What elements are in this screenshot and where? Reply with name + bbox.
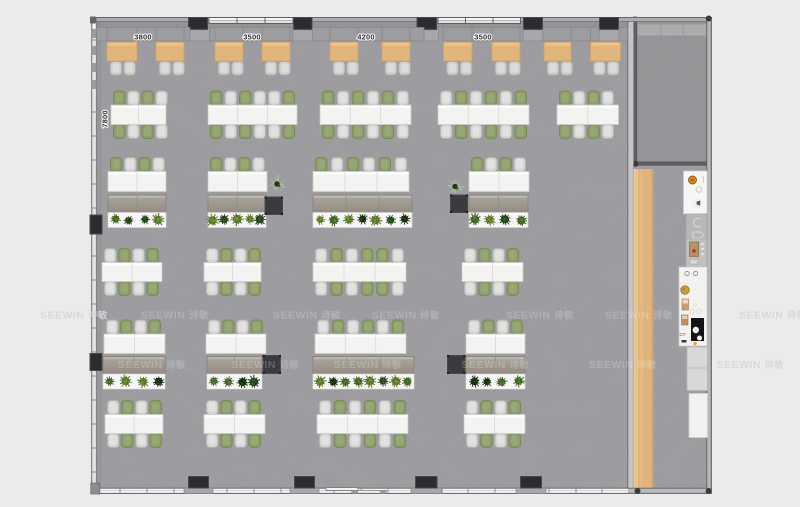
svg-text:CT: CT <box>680 332 686 337</box>
svg-text:SEEWIN 诗敏: SEEWIN 诗敏 <box>506 310 574 322</box>
svg-text:4200: 4200 <box>357 33 375 42</box>
svg-text:SEEWIN 诗敏: SEEWIN 诗敏 <box>334 359 402 371</box>
svg-text:SEEWIN 诗敏: SEEWIN 诗敏 <box>40 310 108 322</box>
svg-text:SEEWIN 诗敏: SEEWIN 诗敏 <box>273 310 341 322</box>
svg-text:3800: 3800 <box>134 33 152 42</box>
svg-text:SEEWIN 诗敏: SEEWIN 诗敏 <box>462 359 530 371</box>
svg-text:SEEWIN 诗敏: SEEWIN 诗敏 <box>589 359 657 371</box>
svg-text:SEEWIN 诗敏: SEEWIN 诗敏 <box>717 359 785 371</box>
svg-text:SEEWIN 诗敏: SEEWIN 诗敏 <box>372 310 440 322</box>
svg-text:3500: 3500 <box>243 33 261 42</box>
svg-text:SEEWIN 诗敏: SEEWIN 诗敏 <box>232 359 300 371</box>
svg-text:3500: 3500 <box>474 33 492 42</box>
svg-text:7800: 7800 <box>101 110 110 128</box>
svg-text:SEEWIN 诗敏: SEEWIN 诗敏 <box>605 310 673 322</box>
svg-text:SEEWIN 诗敏: SEEWIN 诗敏 <box>118 359 186 371</box>
svg-text:SEEWIN 诗敏: SEEWIN 诗敏 <box>739 310 800 322</box>
svg-text:SEEWIN 诗敏: SEEWIN 诗敏 <box>141 310 209 322</box>
